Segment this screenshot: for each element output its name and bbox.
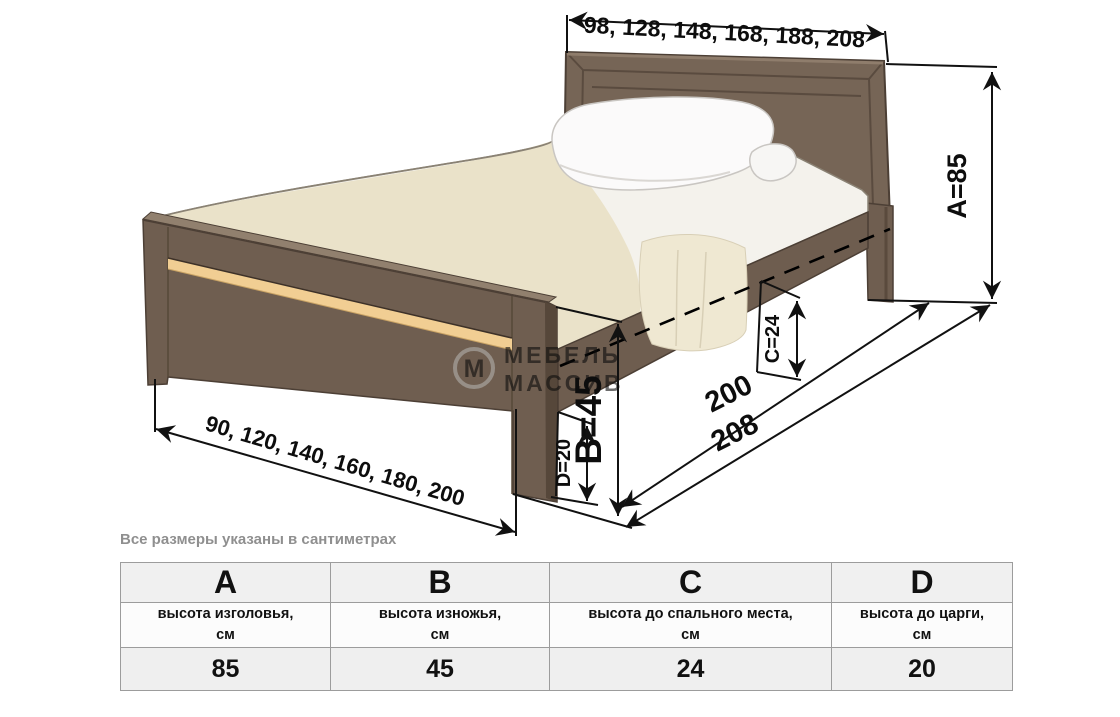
ext-line <box>886 64 997 67</box>
unit-text: см <box>550 625 831 646</box>
units-note: Все размеры указаны в сантиметрах <box>120 531 396 548</box>
col-b-desc: высота изножья,см <box>331 603 550 648</box>
label-height-a: А=85 <box>942 153 972 218</box>
unit-text: см <box>121 625 330 646</box>
col-a-desc: высота изголовья,см <box>121 603 331 648</box>
desc-text: высота изголовья, <box>121 604 330 625</box>
desc-text: высота изножья, <box>331 604 549 625</box>
table-row-letters: A B C D <box>121 563 1013 603</box>
ext-line <box>513 494 632 528</box>
unit-text: см <box>832 625 1012 646</box>
label-headboard-widths: 98, 128, 148, 168, 188, 208 <box>583 12 866 53</box>
col-b-value: 45 <box>331 648 550 691</box>
col-c-value: 24 <box>550 648 832 691</box>
desc-text: высота до царги, <box>832 604 1012 625</box>
col-a-value: 85 <box>121 648 331 691</box>
col-c-letter: C <box>550 563 832 603</box>
head-leg <box>866 203 893 302</box>
col-d-desc: высота до царги,см <box>832 603 1013 648</box>
label-bed-widths: 90, 120, 140, 160, 180, 200 <box>203 411 468 511</box>
ext-line <box>885 31 888 62</box>
dim-line-bed-width <box>156 429 515 532</box>
label-height-d: D=20 <box>553 439 575 487</box>
col-d-letter: D <box>832 563 1013 603</box>
col-d-value: 20 <box>832 648 1013 691</box>
label-height-c: С=24 <box>762 314 784 363</box>
blanket-fold <box>639 234 747 350</box>
watermark-line1: МЕБЕЛЬ <box>504 342 621 368</box>
watermark-logo-letter: М <box>464 355 485 383</box>
col-a-letter: A <box>121 563 331 603</box>
col-b-letter: B <box>331 563 550 603</box>
table-row-values: 85 45 24 20 <box>121 648 1013 691</box>
dimensions-table: A B C D высота изголовья,см высота изнож… <box>120 562 1013 691</box>
col-c-desc: высота до спального места,см <box>550 603 832 648</box>
table-row-descriptions: высота изголовья,см высота изножья,см вы… <box>121 603 1013 648</box>
bed-illustration: М МЕБЕЛЬ МАССИВ 98, 128, 148, 168, 188, … <box>0 0 1120 560</box>
unit-text: см <box>331 625 549 646</box>
bed-dimensions-diagram: М МЕБЕЛЬ МАССИВ 98, 128, 148, 168, 188, … <box>0 0 1120 717</box>
desc-text: высота до спального места, <box>550 604 831 625</box>
